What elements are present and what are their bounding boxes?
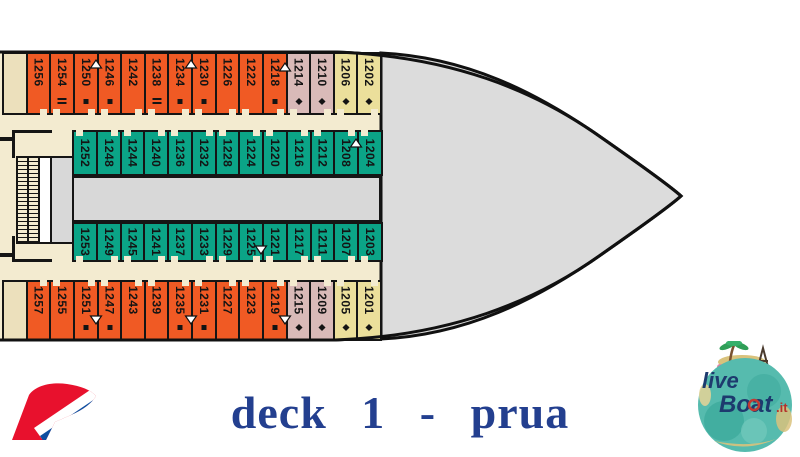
square-symbol — [202, 325, 207, 330]
cabin-1210: 1210 — [309, 52, 335, 115]
cabin-1222: 1222 — [238, 52, 264, 115]
cabin-door — [171, 130, 178, 136]
cabin-1253: 1253 — [72, 222, 98, 262]
cabin-door — [290, 109, 297, 115]
cabin-1251: 1251 — [73, 280, 99, 341]
dblbar-symbol — [152, 98, 161, 100]
cabin-door — [111, 256, 118, 262]
cabin-door — [88, 109, 95, 115]
cabin-number: 1249 — [102, 228, 116, 257]
cabin-door — [53, 109, 60, 115]
cabin-number: 1237 — [173, 228, 187, 257]
cabin-1201: 1201 — [356, 280, 382, 341]
cabin-door — [219, 256, 226, 262]
cabin-1223: 1223 — [238, 280, 264, 341]
cabin-door — [371, 109, 378, 115]
cabin-number: 1243 — [126, 286, 140, 315]
cabin-door — [111, 130, 118, 136]
diamond-symbol — [342, 324, 349, 331]
cabin-1234: 1234 — [167, 52, 193, 115]
cabin-door — [124, 130, 131, 136]
cabin-1208: 1208 — [333, 130, 359, 176]
wall-segment — [12, 130, 15, 158]
cabin-number: 1230 — [197, 58, 211, 87]
cabin-1236: 1236 — [167, 130, 193, 176]
cabin-door — [148, 109, 155, 115]
square-symbol — [178, 99, 183, 104]
cabin-number: 1207 — [339, 228, 353, 257]
machinery-casing — [72, 176, 381, 222]
cabin-number: 1218 — [268, 58, 282, 87]
cabin-door — [195, 109, 202, 115]
square-symbol — [273, 325, 278, 330]
cabin-1215: 1215 — [286, 280, 311, 341]
cabin-1242: 1242 — [120, 52, 146, 115]
cabin-1252: 1252 — [72, 130, 98, 176]
cabin-1212: 1212 — [310, 130, 335, 176]
cabin-number: 1233 — [197, 228, 211, 257]
cabin-door — [171, 256, 178, 262]
cabin-1202: 1202 — [356, 52, 382, 115]
cabin-1218: 1218 — [262, 52, 288, 115]
cabin-number: 1211 — [316, 228, 330, 256]
cabin-number: 1209 — [315, 286, 329, 315]
dblbar-symbol — [58, 98, 67, 100]
cabin-door — [206, 130, 213, 136]
cabin-1256: 1256 — [26, 52, 51, 115]
cabin-1220: 1220 — [262, 130, 288, 176]
wall-segment — [12, 236, 15, 262]
machinery-casing — [50, 156, 74, 244]
cabin-door — [182, 109, 189, 115]
cabin-number: 1254 — [55, 58, 69, 87]
cabin-door — [253, 256, 260, 262]
cabin-number: 1201 — [362, 286, 376, 315]
cabin-door — [266, 130, 273, 136]
stairs-icon — [16, 156, 40, 244]
cabin-number: 1241 — [149, 228, 163, 257]
cabin-1237: 1237 — [167, 222, 193, 262]
square-symbol — [84, 325, 89, 330]
cabin-door — [361, 256, 368, 262]
cabin-number: 1250 — [79, 58, 93, 87]
square-symbol — [273, 99, 278, 104]
cabin-1235: 1235 — [167, 280, 193, 341]
cabin-door — [40, 280, 47, 286]
diamond-symbol — [295, 98, 302, 105]
cabin-1248: 1248 — [96, 130, 122, 176]
cabin-number: 1242 — [126, 58, 140, 87]
diamond-symbol — [295, 324, 302, 331]
cabin-1255: 1255 — [49, 280, 75, 341]
cabin-door — [219, 130, 226, 136]
cabin-1225: 1225 — [238, 222, 264, 262]
cabin-unnumbered — [2, 280, 28, 341]
cabin-1217: 1217 — [286, 222, 312, 262]
cabin-number: 1210 — [315, 58, 329, 87]
cabin-number: 1226 — [221, 58, 235, 87]
cabin-1232: 1232 — [191, 130, 217, 176]
cabin-door — [124, 256, 131, 262]
cabin-number: 1240 — [149, 139, 163, 168]
page-title: deck 1 - prua — [0, 386, 800, 439]
cabin-number: 1222 — [244, 58, 258, 87]
diamond-symbol — [318, 98, 325, 105]
cabin-number: 1217 — [292, 228, 306, 257]
cabin-1241: 1241 — [143, 222, 169, 262]
cabin-door — [229, 280, 236, 286]
cabin-number: 1227 — [221, 286, 235, 315]
cabin-number: 1225 — [244, 228, 258, 257]
cabin-1250: 1250 — [73, 52, 99, 115]
cabin-door — [135, 280, 142, 286]
cabin-door — [182, 280, 189, 286]
cabin-number: 1232 — [197, 139, 211, 168]
cabin-number: 1252 — [78, 139, 92, 168]
cabin-1254: 1254 — [49, 52, 75, 115]
cabin-number: 1229 — [221, 228, 235, 257]
cabin-number: 1253 — [78, 228, 92, 257]
diamond-symbol — [365, 324, 372, 331]
cabin-1243: 1243 — [120, 280, 146, 341]
cabin-1245: 1245 — [120, 222, 145, 262]
diamond-symbol — [318, 324, 325, 331]
cabin-door — [229, 109, 236, 115]
cabin-1246: 1246 — [97, 52, 122, 115]
cabin-number: 1215 — [292, 286, 306, 315]
cabin-number: 1214 — [292, 58, 306, 87]
cabin-1247: 1247 — [97, 280, 122, 341]
cabin-number: 1231 — [197, 286, 211, 315]
cabin-number: 1212 — [316, 139, 330, 168]
square-symbol — [202, 99, 207, 104]
cabin-door — [290, 280, 297, 286]
wall-segment — [12, 259, 52, 262]
liveboat-boat-text: Boat — [719, 391, 773, 418]
cabin-number: 1216 — [292, 139, 306, 168]
square-symbol — [107, 325, 112, 330]
cabin-1226: 1226 — [215, 52, 240, 115]
cabin-door — [135, 109, 142, 115]
cabin-number: 1251 — [79, 286, 93, 315]
cabin-door — [348, 130, 355, 136]
cabin-door — [101, 280, 108, 286]
cabin-1240: 1240 — [143, 130, 169, 176]
cabin-1249: 1249 — [96, 222, 122, 262]
cabin-1231: 1231 — [191, 280, 217, 341]
cabin-number: 1219 — [268, 286, 282, 315]
wall-segment — [12, 130, 52, 133]
cabin-1214: 1214 — [286, 52, 311, 115]
cabin-number: 1244 — [126, 139, 140, 168]
cabin-number: 1257 — [32, 286, 46, 315]
cabin-1227: 1227 — [215, 280, 240, 341]
square-symbol — [178, 325, 183, 330]
cabin-1233: 1233 — [191, 222, 217, 262]
cabin-number: 1235 — [173, 286, 187, 315]
cabin-number: 1246 — [103, 58, 117, 87]
cabin-1219: 1219 — [262, 280, 288, 341]
cabin-door — [324, 280, 331, 286]
cabin-number: 1223 — [244, 286, 258, 315]
cabin-unnumbered — [2, 52, 28, 115]
cabin-door — [301, 256, 308, 262]
cabin-number: 1256 — [32, 58, 46, 87]
cabin-door — [101, 109, 108, 115]
cabin-number: 1238 — [150, 58, 164, 87]
cabin-door — [314, 130, 321, 136]
cabin-door — [158, 130, 165, 136]
cabin-number: 1239 — [150, 286, 164, 315]
cabin-1238: 1238 — [144, 52, 169, 115]
cabin-number: 1206 — [339, 58, 353, 87]
cabin-number: 1205 — [339, 286, 353, 315]
cabin-number: 1208 — [339, 139, 353, 168]
cabin-door — [337, 109, 344, 115]
cabin-number: 1202 — [362, 58, 376, 87]
cabin-number: 1221 — [268, 228, 282, 257]
cabin-number: 1203 — [363, 228, 377, 257]
cabin-1216: 1216 — [286, 130, 312, 176]
cabin-1221: 1221 — [262, 222, 288, 262]
cabin-number: 1204 — [363, 139, 377, 168]
cabin-1204: 1204 — [357, 130, 383, 176]
cabin-1211: 1211 — [310, 222, 335, 262]
cabin-door — [348, 256, 355, 262]
cabin-door — [371, 280, 378, 286]
cabin-1205: 1205 — [333, 280, 358, 341]
diamond-symbol — [365, 98, 372, 105]
cabin-door — [301, 130, 308, 136]
cabin-1244: 1244 — [120, 130, 145, 176]
cabin-number: 1255 — [55, 286, 69, 315]
square-symbol — [84, 99, 89, 104]
cabin-door — [242, 280, 249, 286]
cabin-door — [266, 256, 273, 262]
cabin-1207: 1207 — [333, 222, 359, 262]
cabin-door — [324, 109, 331, 115]
cabin-door — [158, 256, 165, 262]
carnival-funnel-logo — [10, 382, 98, 442]
cabin-door — [337, 280, 344, 286]
square-symbol — [107, 99, 112, 104]
cabin-number: 1236 — [173, 139, 187, 168]
cabin-1229: 1229 — [215, 222, 240, 262]
cabin-door — [76, 256, 83, 262]
liveboat-live-text: live — [702, 368, 739, 393]
cabin-number: 1224 — [244, 139, 258, 168]
deck-plan-page: { "footer": { "title": "deck 1 - prua" }… — [0, 0, 800, 457]
cabin-number: 1228 — [221, 139, 235, 168]
cabin-1230: 1230 — [191, 52, 217, 115]
cabin-door — [277, 280, 284, 286]
cabin-1209: 1209 — [309, 280, 335, 341]
cabin-number: 1234 — [173, 58, 187, 87]
cabin-door — [314, 256, 321, 262]
cabin-door — [88, 280, 95, 286]
cabin-door — [148, 280, 155, 286]
cabin-door — [40, 109, 47, 115]
cabin-door — [361, 130, 368, 136]
cabin-number: 1245 — [126, 228, 140, 257]
cabin-number: 1220 — [268, 139, 282, 168]
liveboat-it-text: .it — [776, 400, 788, 415]
cabin-number: 1248 — [102, 139, 116, 168]
cabin-door — [53, 280, 60, 286]
cabin-1239: 1239 — [144, 280, 169, 341]
cabin-1257: 1257 — [26, 280, 51, 341]
cabin-door — [242, 109, 249, 115]
cabin-1228: 1228 — [215, 130, 240, 176]
cabin-1203: 1203 — [357, 222, 383, 262]
cabin-1206: 1206 — [333, 52, 358, 115]
cabin-door — [206, 256, 213, 262]
liveboat-logo: live Boat .it — [692, 341, 799, 454]
diamond-symbol — [342, 98, 349, 105]
cabin-door — [76, 130, 83, 136]
cabin-number: 1247 — [103, 286, 117, 315]
cabin-door — [277, 109, 284, 115]
cabin-1224: 1224 — [238, 130, 264, 176]
cabin-door — [253, 130, 260, 136]
cabin-door — [195, 280, 202, 286]
